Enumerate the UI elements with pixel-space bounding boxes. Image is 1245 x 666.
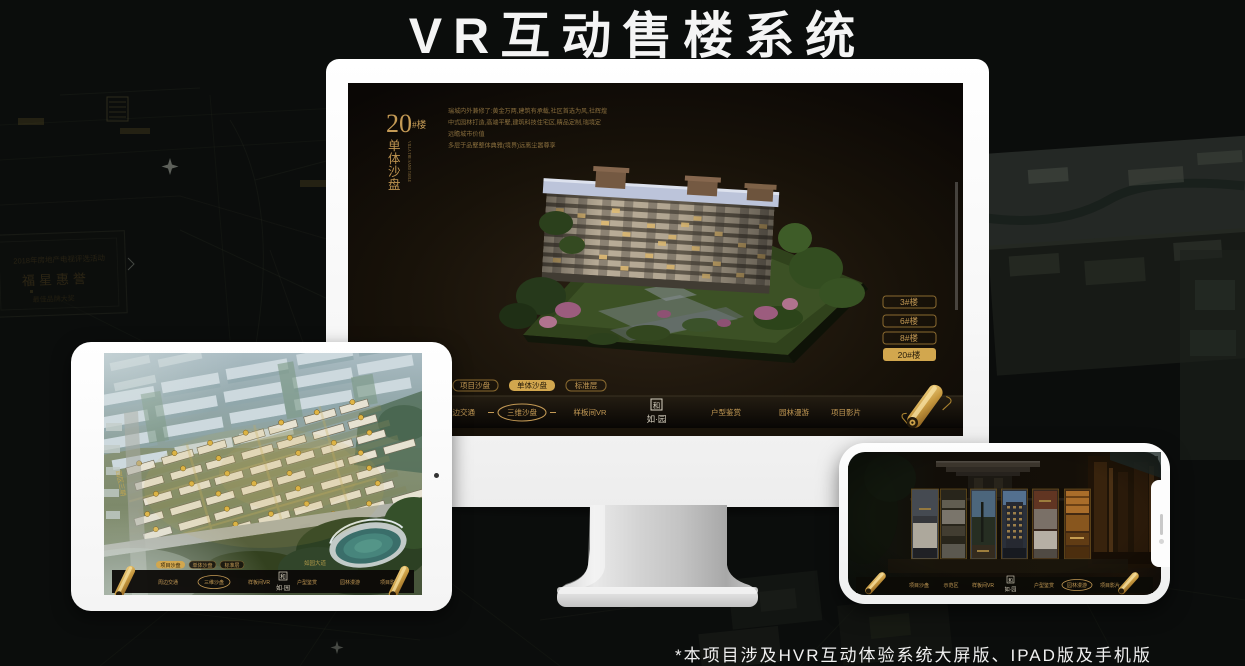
svg-text:#楼: #楼 — [412, 119, 427, 131]
svg-text:项目影片: 项目影片 — [831, 407, 861, 417]
svg-text:多层于品墅整体典雅(境界)远离尘嚣尊享: 多层于品墅整体典雅(境界)远离尘嚣尊享 — [448, 142, 556, 150]
svg-text:如·园: 如·园 — [276, 584, 290, 592]
svg-text:示范区: 示范区 — [943, 582, 958, 589]
svg-text:户型鉴赏: 户型鉴赏 — [711, 407, 741, 417]
svg-text:户型鉴赏: 户型鉴赏 — [297, 579, 317, 586]
svg-text:20: 20 — [386, 109, 412, 138]
svg-text:盘: 盘 — [388, 177, 401, 192]
svg-text:如·园: 如·园 — [647, 414, 667, 424]
svg-text:20#楼: 20#楼 — [898, 350, 921, 360]
svg-text:周边交通: 周边交通 — [158, 579, 178, 586]
svg-text:8#楼: 8#楼 — [900, 333, 918, 343]
svg-text:单: 单 — [388, 139, 401, 153]
svg-text:单体沙盘: 单体沙盘 — [517, 380, 547, 390]
svg-text:3#楼: 3#楼 — [900, 297, 918, 307]
svg-text:和: 和 — [653, 401, 661, 410]
svg-text:项目沙盘: 项目沙盘 — [909, 582, 929, 589]
svg-text:单体沙盘: 单体沙盘 — [192, 562, 212, 569]
svg-text:远瞻城市价值: 远瞻城市价值 — [448, 130, 485, 138]
svg-text:项目影片: 项目影片 — [1100, 582, 1120, 589]
svg-text:三维沙盘: 三维沙盘 — [507, 407, 537, 417]
svg-text:样板间VR: 样板间VR — [574, 407, 608, 417]
svg-text:VILLA THE SAND TABLE: VILLA THE SAND TABLE — [407, 141, 411, 183]
svg-text:样板间VR: 样板间VR — [972, 582, 994, 589]
svg-text:项目沙盘: 项目沙盘 — [460, 380, 490, 390]
svg-text:园林漫游: 园林漫游 — [1067, 582, 1087, 589]
svg-text:园林漫游: 园林漫游 — [340, 579, 360, 586]
svg-text:和: 和 — [1008, 577, 1013, 584]
svg-text:6#楼: 6#楼 — [900, 316, 918, 326]
svg-text:标准层: 标准层 — [575, 380, 598, 390]
svg-text:如园大道: 如园大道 — [304, 559, 327, 567]
svg-text:三维沙盘: 三维沙盘 — [204, 579, 224, 586]
svg-text:福星惠誉: 福星惠誉 — [22, 271, 90, 288]
svg-text:和: 和 — [280, 573, 286, 581]
svg-text:园林漫游: 园林漫游 — [779, 407, 809, 417]
svg-text:瑞城内外兼修了:黄金万两,建筑有承载,社区首选为风,社辉煌: 瑞城内外兼修了:黄金万两,建筑有承载,社区首选为风,社辉煌 — [448, 107, 607, 115]
svg-text:标准层: 标准层 — [224, 562, 239, 569]
svg-text:沙: 沙 — [388, 165, 401, 179]
svg-text:样板间VR: 样板间VR — [248, 579, 270, 586]
svg-text:体: 体 — [388, 152, 401, 166]
svg-text:如·园: 如·园 — [1005, 586, 1017, 593]
svg-text:中式园林打造,高端平墅,建筑科技住宅区,精品定制,瑞境定: 中式园林打造,高端平墅,建筑科技住宅区,精品定制,瑞境定 — [448, 119, 601, 127]
svg-text:项目沙盘: 项目沙盘 — [160, 562, 180, 569]
svg-text:户型鉴赏: 户型鉴赏 — [1034, 582, 1054, 589]
